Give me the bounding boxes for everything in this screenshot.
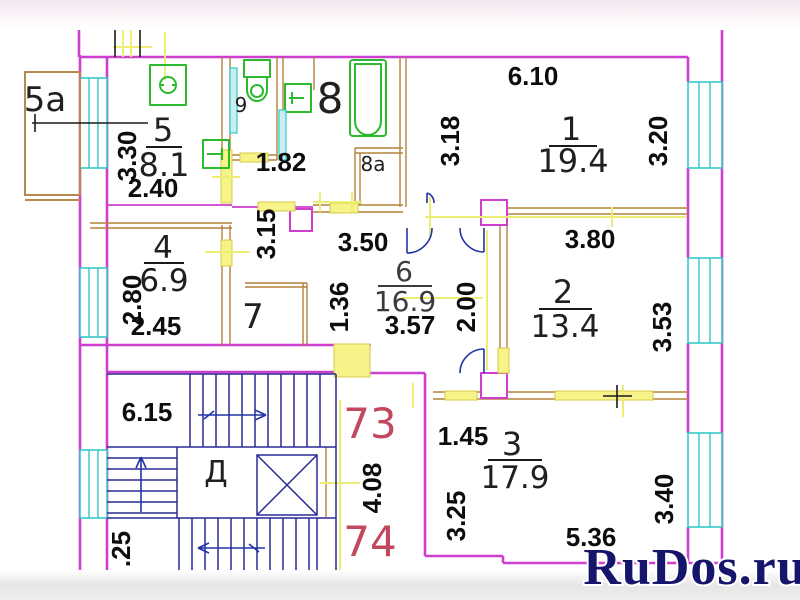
dim-3-80: 3.80 <box>565 224 616 254</box>
dim-0-25: .25 <box>106 531 136 567</box>
room5-number: 5 <box>153 111 173 149</box>
dim-3-57: 3.57 <box>385 310 436 340</box>
apartment-number-73: 73 <box>343 399 396 448</box>
floor-plan-drawing: 5a 3.30 5 8.1 2.40 9 8 8a 1.82 3.15 6.10… <box>0 0 800 600</box>
dim-3-50: 3.50 <box>338 227 389 257</box>
dim-3-18: 3.18 <box>435 116 465 167</box>
window-room1 <box>688 82 722 168</box>
stair-door-mark: Д <box>204 455 227 490</box>
dim-1-45: 1.45 <box>438 421 489 451</box>
bath-door <box>330 203 358 213</box>
room3-door <box>445 391 477 400</box>
room1-area: 19.4 <box>537 142 608 180</box>
window-room2 <box>688 258 722 343</box>
bath-closet-label: 8a <box>361 152 386 176</box>
room2-number: 2 <box>553 273 573 311</box>
dim-2-45: 2.45 <box>131 311 182 341</box>
room6-number: 6 <box>395 255 413 288</box>
dim-2-00: 2.00 <box>451 282 481 333</box>
apartment-entrance-door <box>334 344 370 377</box>
dim-6-10: 6.10 <box>508 61 559 91</box>
dim-4-08: 4.08 <box>357 463 387 514</box>
dim-3-53: 3.53 <box>647 302 677 353</box>
bath-label: 8 <box>317 74 344 123</box>
apartment-number-74: 74 <box>343 517 396 566</box>
window-stairwell <box>80 450 107 518</box>
dim-1-82: 1.82 <box>256 147 307 177</box>
dim-3-25: 3.25 <box>441 491 471 542</box>
dim-3-15: 3.15 <box>251 209 281 260</box>
dim-1-36: 1.36 <box>324 282 354 333</box>
room2-area: 13.4 <box>530 309 599 345</box>
room3-number: 3 <box>502 425 522 463</box>
watermark: RuDos.ru <box>583 539 800 596</box>
wc-label: 9 <box>235 93 248 117</box>
pantry-label: 7 <box>242 297 264 337</box>
dim-2-40: 2.40 <box>128 173 179 203</box>
room2-door <box>498 348 509 373</box>
window-room4 <box>80 268 107 337</box>
dim-3-20: 3.20 <box>643 116 673 167</box>
room4-number: 4 <box>153 230 173 266</box>
dim-3-40: 3.40 <box>649 474 679 525</box>
dim-6-15: 6.15 <box>122 397 173 427</box>
top-scan-band <box>0 0 800 28</box>
room3-area: 17.9 <box>480 460 549 496</box>
floor-plan-page: 5a 3.30 5 8.1 2.40 9 8 8a 1.82 3.15 6.10… <box>0 0 800 600</box>
balcony-label: 5a <box>24 80 66 120</box>
window-room3 <box>688 433 722 527</box>
